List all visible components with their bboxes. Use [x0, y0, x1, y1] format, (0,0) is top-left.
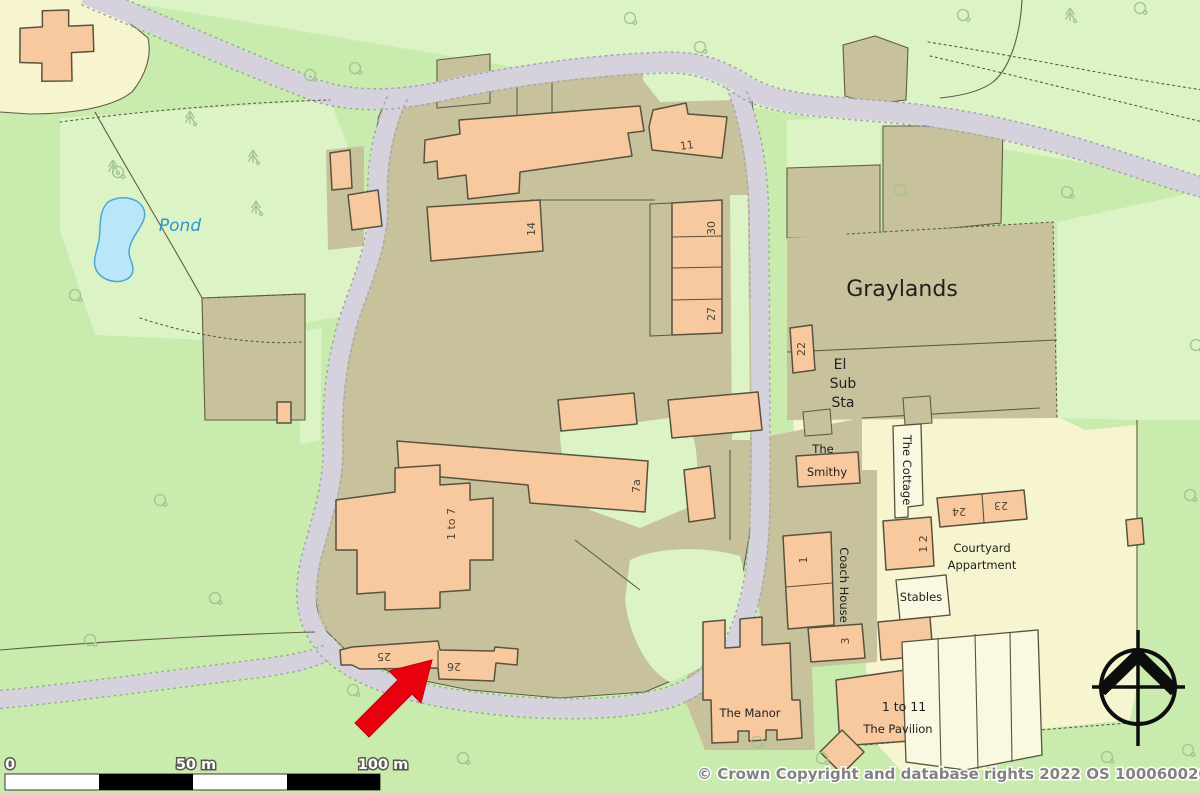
parcel-west [202, 294, 305, 420]
building-east-edge [1126, 518, 1144, 546]
number-7a: 7a [630, 479, 643, 493]
parcel-graylands-main [787, 222, 1057, 420]
label-1-to-11: 1 to 11 [882, 699, 926, 714]
field-graylands-north [787, 117, 880, 168]
number-26: 26 [447, 660, 461, 673]
parcel-top [843, 36, 908, 104]
building-mid-small-a [558, 393, 637, 431]
scale-bar-segment-black-1 [99, 774, 193, 790]
label-sub: Sub [830, 376, 857, 392]
building-tiny-w [330, 150, 352, 190]
label-el: El [834, 357, 847, 373]
number-3: 3 [839, 638, 852, 645]
number-14: 14 [525, 222, 538, 236]
building-substation-b [903, 396, 932, 425]
building-3 [808, 624, 865, 662]
number-25: 25 [377, 650, 391, 663]
building-small-nw [348, 190, 382, 230]
scale-label-0: 0 [5, 757, 15, 773]
number-24: 24 [952, 505, 966, 518]
scale-label-100m: 100 m [358, 757, 408, 773]
number-1: 1 [797, 557, 810, 564]
label-sta: Sta [832, 395, 855, 411]
parcel-graylands-nw [787, 165, 880, 238]
copyright-notice: © Crown Copyright and database rights 20… [697, 765, 1200, 783]
number-30: 30 [705, 221, 718, 235]
number-11: 11 [679, 138, 695, 153]
os-map-canvas: Pond [0, 0, 1200, 793]
building-coach-1 [783, 532, 834, 629]
number-1-to-7: 1 to 7 [445, 508, 458, 540]
label-the-pavilion: The Pavilion [862, 722, 932, 736]
parcel-graylands-ne [883, 126, 1003, 235]
label-smithy-line1: The [811, 442, 833, 456]
label-graylands: Graylands [846, 277, 958, 302]
number-27: 27 [705, 307, 718, 321]
building-tiny-sw [277, 402, 291, 423]
field-east [1057, 190, 1200, 420]
scale-label-50m: 50 m [176, 757, 216, 773]
label-the-cottage: The Cottage [900, 434, 914, 506]
pond-label: Pond [159, 216, 201, 236]
building-2730-west-bay [650, 203, 672, 336]
building-substation-a [803, 409, 832, 436]
scale-bar-segment-black-2 [287, 774, 380, 790]
map-svg: Pond [0, 0, 1200, 793]
number-1-2: 1 2 [917, 535, 930, 553]
number-22: 22 [795, 342, 808, 356]
number-23: 23 [994, 499, 1008, 512]
label-the-manor: The Manor [718, 706, 780, 720]
building-mid-small-b [668, 392, 762, 438]
label-smithy-line2: Smithy [807, 465, 847, 479]
label-courtyard: Courtyard [953, 541, 1010, 555]
building-mid-small-c [684, 466, 715, 522]
label-coach-house: Coach House [837, 547, 851, 622]
label-stables: Stables [900, 590, 942, 604]
label-appartment: Appartment [948, 558, 1017, 572]
